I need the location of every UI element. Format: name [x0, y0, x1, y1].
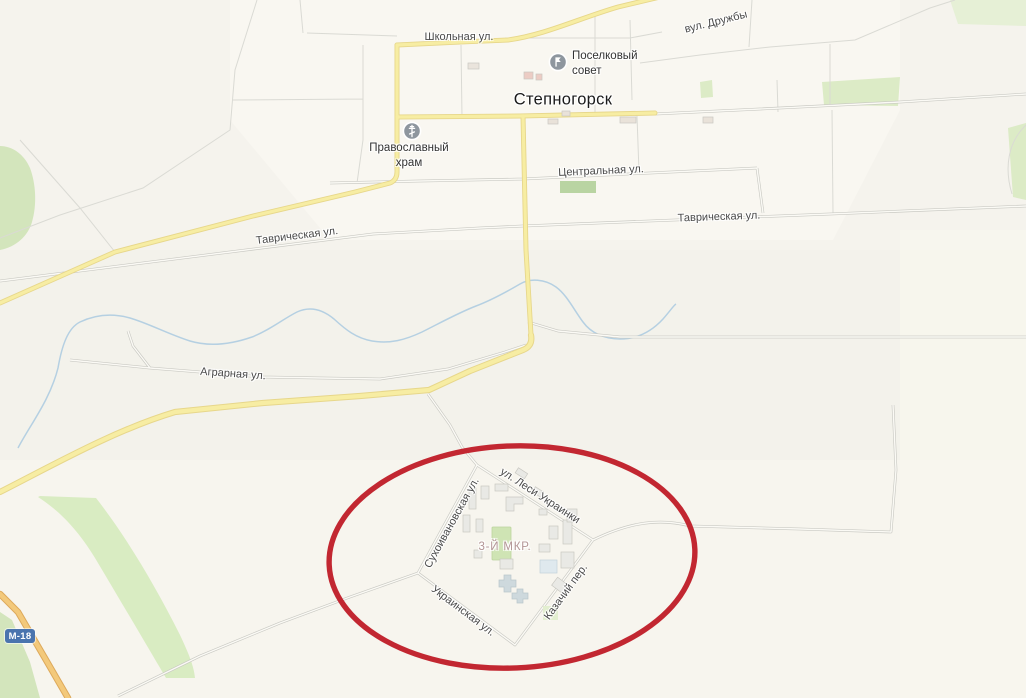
poi-label-pravoslavny-khram[interactable]: Православный храм [369, 141, 448, 171]
map-canvas[interactable]: Степногорск Школьная ул. вул. Дружбы Цен… [0, 0, 1026, 698]
route-badge-m18: М-18 [5, 629, 35, 643]
town-label: Степногорск [514, 91, 612, 110]
administration-flag-icon[interactable] [548, 52, 568, 72]
orthodox-cross-icon[interactable] [402, 121, 422, 141]
poi-label-poselkovy-sovet[interactable]: Поселковый совет [572, 49, 638, 79]
street-label-shkolnaya: Школьная ул. [425, 31, 494, 43]
district-label-3rd-mkr: 3-Й МКР. [478, 541, 531, 553]
